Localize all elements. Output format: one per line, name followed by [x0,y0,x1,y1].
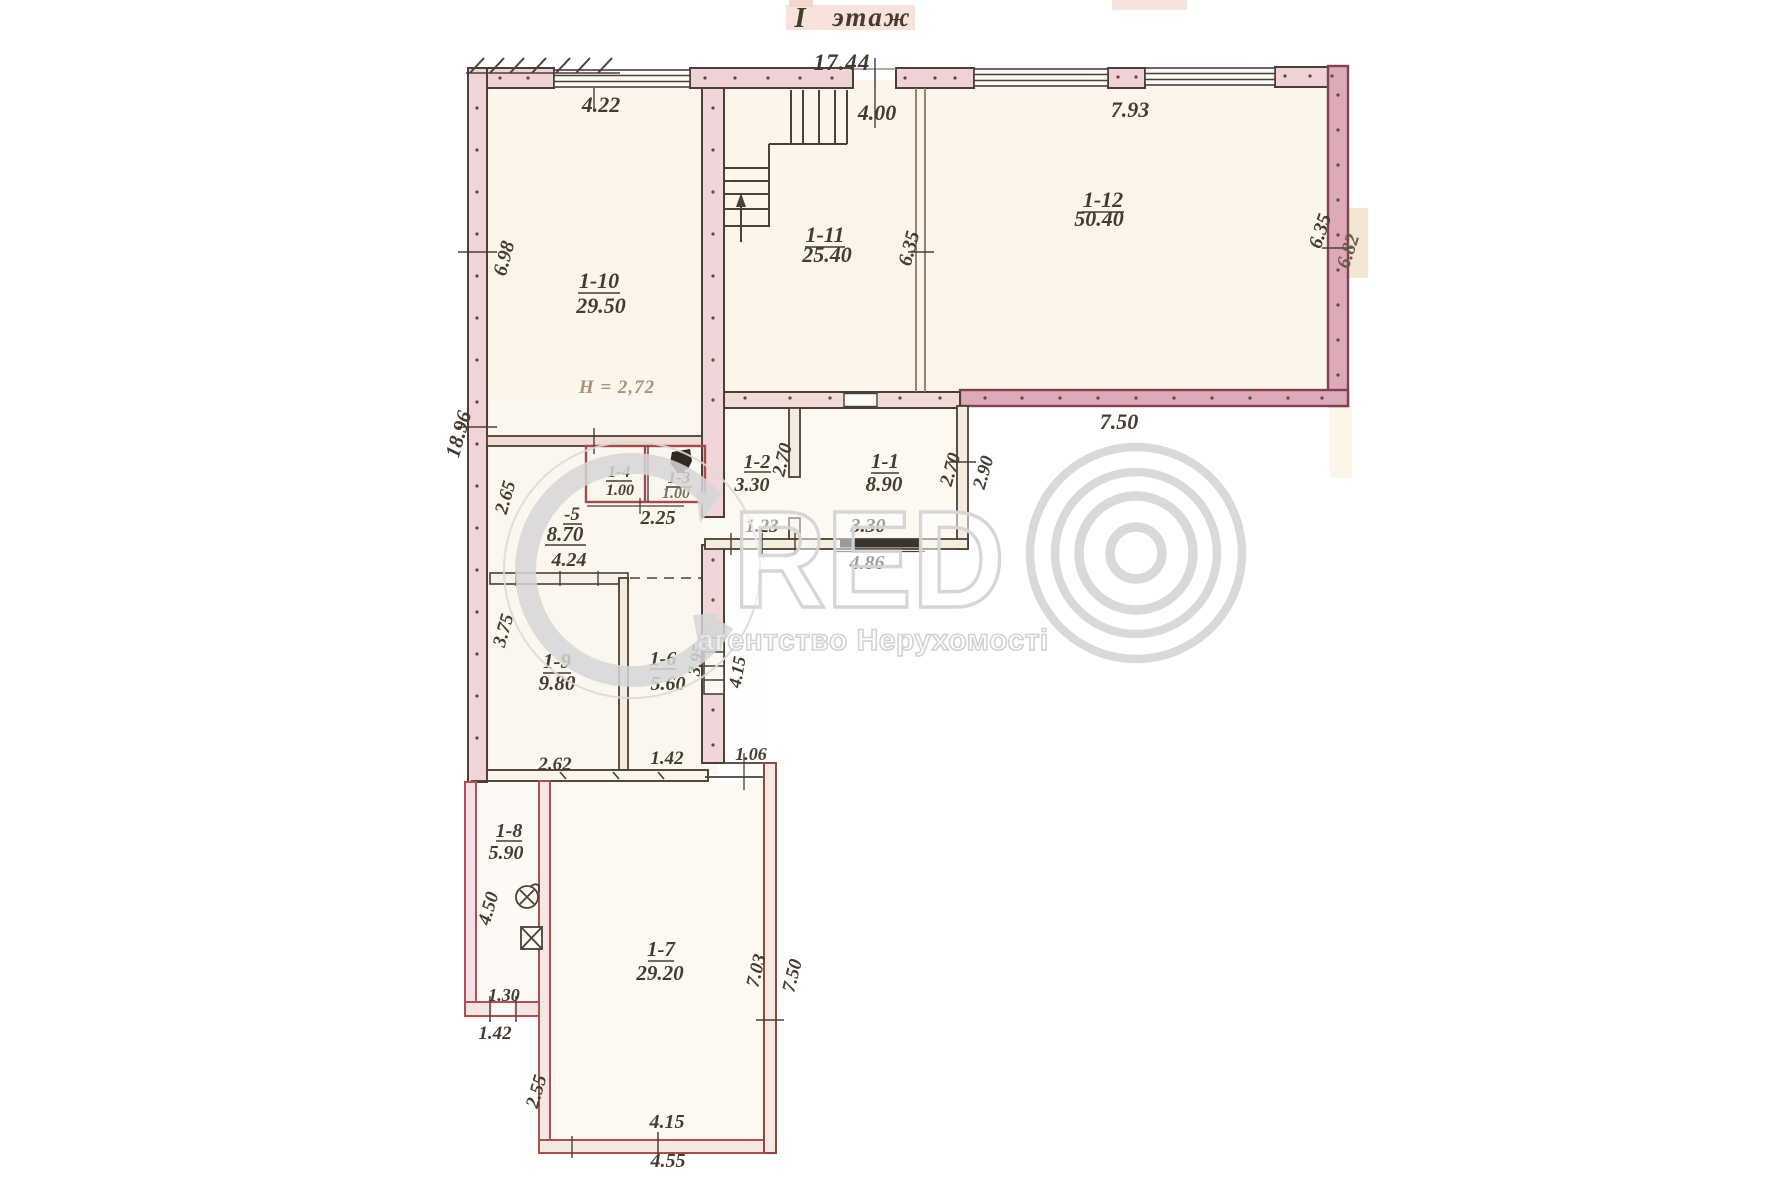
svg-text:1.30: 1.30 [488,985,520,1005]
svg-text:2.25: 2.25 [640,507,676,529]
svg-text:I: I [793,2,807,34]
svg-text:2.62: 2.62 [537,754,572,775]
svg-text:4.22: 4.22 [581,92,621,117]
svg-text:агентство Нерухомості: агентство Нерухомості [697,624,1049,657]
svg-text:29.50: 29.50 [575,293,626,318]
svg-text:RED: RED [733,483,1005,637]
svg-text:50.40: 50.40 [1074,206,1124,231]
svg-text:1.00: 1.00 [606,482,634,499]
svg-text:17.44: 17.44 [814,50,871,75]
svg-text:1.42: 1.42 [478,1023,512,1044]
svg-text:5.90: 5.90 [489,842,524,864]
svg-text:этаж: этаж [831,2,911,32]
svg-text:1-2: 1-2 [744,451,771,473]
svg-text:1.06: 1.06 [735,744,767,764]
svg-text:H = 2,72: H = 2,72 [578,377,655,398]
svg-text:8.70: 8.70 [547,522,584,546]
svg-text:1.42: 1.42 [650,748,684,769]
svg-text:4.00: 4.00 [857,100,897,125]
svg-text:1-7: 1-7 [647,937,676,961]
svg-text:7.93: 7.93 [1111,97,1150,122]
svg-text:29.20: 29.20 [635,961,684,985]
svg-text:1-1: 1-1 [871,449,899,473]
svg-text:4.15: 4.15 [649,1111,685,1133]
svg-text:4.55: 4.55 [650,1150,686,1172]
svg-text:25.40: 25.40 [801,242,852,267]
svg-text:1-8: 1-8 [496,820,523,842]
svg-text:7.50: 7.50 [1100,409,1139,434]
svg-text:1-10: 1-10 [579,268,619,293]
svg-text:4.24: 4.24 [551,549,587,571]
